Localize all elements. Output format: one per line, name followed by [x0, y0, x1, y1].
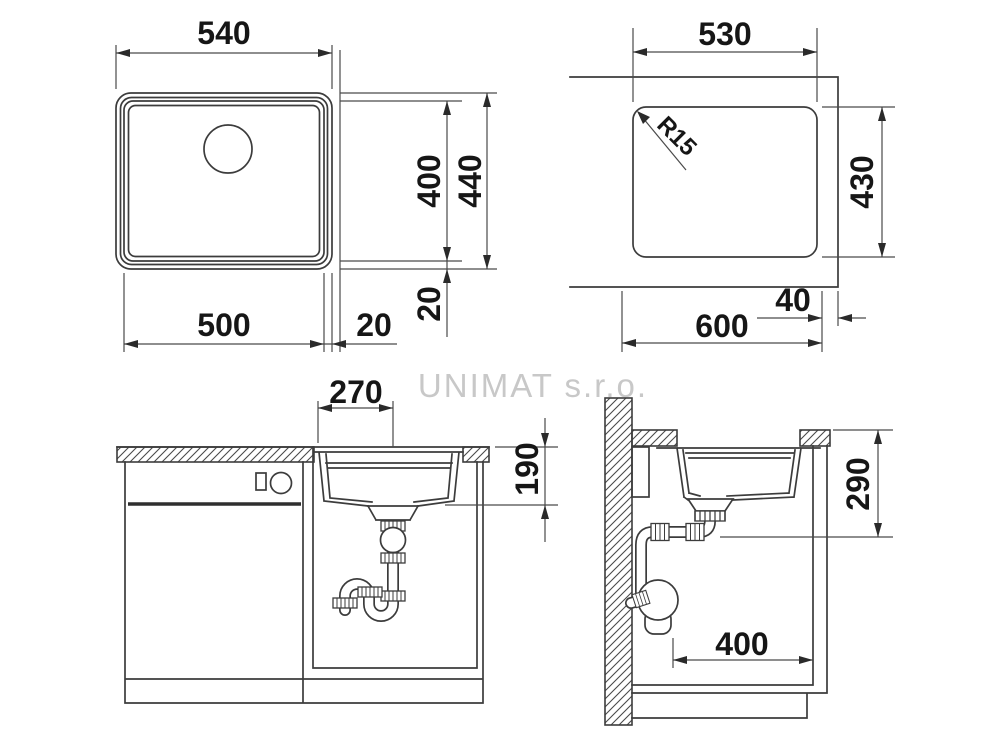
- dim-drain-wall-distance: 400: [715, 626, 768, 662]
- dim-edge-offset-v: 20: [411, 286, 447, 322]
- countertop-hatch-left: [117, 447, 314, 462]
- drain-trap-front: [333, 528, 406, 617]
- cutout-plan-view: 530 430 600 40 R15: [570, 16, 895, 352]
- dim-bowl-height: 400: [411, 154, 447, 207]
- dim-drain-offset: 270: [329, 374, 382, 410]
- dishwasher-knob-icon: [271, 473, 292, 494]
- sink-technical-drawing: UNIMAT s.r.o. 540 500: [0, 0, 1000, 750]
- drain-trap-side: [631, 516, 710, 634]
- dishwasher-panel-icon: [256, 473, 266, 490]
- front-section-view: 270 190: [117, 374, 558, 703]
- wall-batten: [632, 447, 649, 497]
- ball-joint: [381, 528, 406, 553]
- countertop-hatch-back: [632, 430, 677, 446]
- dim-bowl-depth: 190: [509, 442, 545, 495]
- dim-outer-height: 440: [452, 154, 488, 207]
- countertop-outline: [570, 77, 838, 287]
- dim-outlet-height: 290: [840, 457, 876, 510]
- dim-bowl-width: 500: [197, 307, 250, 343]
- bowl-section-front: [314, 452, 463, 616]
- drain-hole: [204, 125, 252, 173]
- technical-drawing-page: UNIMAT s.r.o. 540 500: [0, 0, 1000, 750]
- dim-outer-width: 540: [197, 15, 250, 51]
- bowl-section-side: [631, 448, 820, 634]
- dim-edge-distance: 40: [775, 282, 811, 318]
- dim-corner-radius: R15: [652, 111, 702, 161]
- dim-cabinet-width: 600: [695, 308, 748, 344]
- side-section-view: 290 400: [605, 398, 893, 725]
- strainer-flange: [688, 499, 733, 511]
- wall-hatch: [605, 398, 632, 725]
- sink-outline: [116, 93, 332, 269]
- sink-plan-view: 540 500 20 400 440 20: [116, 15, 497, 352]
- dim-cutout-height: 430: [844, 155, 880, 208]
- dim-cutout-width: 530: [698, 16, 751, 52]
- countertop-hatch-right: [463, 447, 489, 462]
- countertop-hatch-front: [800, 430, 830, 446]
- dim-edge-offset-h: 20: [356, 307, 392, 343]
- base-cabinets: [125, 447, 483, 703]
